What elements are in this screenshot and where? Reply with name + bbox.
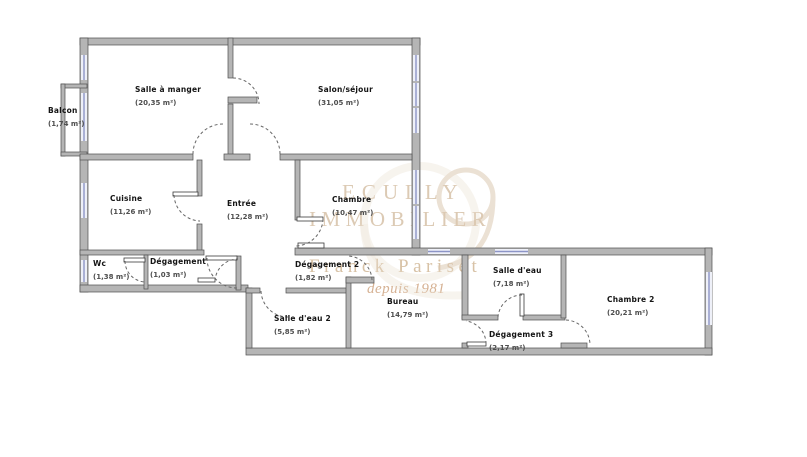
room-label-bureau: Bureau (14,79 m²) [387, 297, 428, 319]
room-name: Cuisine [110, 194, 151, 203]
room-name: Balcon [48, 106, 84, 115]
room-label-chambre-2: Chambre 2 (20,21 m²) [607, 295, 655, 317]
floor-plan-canvas: ECULLY IMMOBILIER Franck Pariset depuis … [0, 0, 807, 457]
room-name: Salle à manger [135, 85, 201, 94]
room-name: Dégagement [150, 257, 206, 266]
room-label-salle-a-manger: Salle à manger (20,35 m²) [135, 85, 201, 107]
room-name: Wc [93, 259, 129, 268]
room-name: Dégagement 3 [489, 330, 553, 339]
room-label-wc: Wc (1,38 m²) [93, 259, 129, 281]
room-area: (1,38 m²) [93, 273, 129, 281]
room-area: (31,05 m²) [318, 99, 373, 107]
room-name: Dégagement 2 [295, 260, 359, 269]
room-label-salle-d-eau-2: Salle d'eau 2 (5,85 m²) [274, 314, 331, 336]
room-area: (7,18 m²) [493, 280, 542, 288]
room-area: (1,82 m²) [295, 274, 359, 282]
room-label-cuisine: Cuisine (11,26 m²) [110, 194, 151, 216]
room-area: (20,35 m²) [135, 99, 201, 107]
room-area: (14,79 m²) [387, 311, 428, 319]
room-name: Salle d'eau [493, 266, 542, 275]
room-label-salle-d-eau: Salle d'eau (7,18 m²) [493, 266, 542, 288]
room-area: (11,26 m²) [110, 208, 151, 216]
room-name: Salon/séjour [318, 85, 373, 94]
room-area: (1,74 m²) [48, 120, 84, 128]
room-area: (12,28 m²) [227, 213, 268, 221]
room-label-entree: Entrée (12,28 m²) [227, 199, 268, 221]
room-label-degagement-3: Dégagement 3 (2,17 m²) [489, 330, 553, 352]
room-area: (1,03 m²) [150, 271, 206, 279]
room-label-salon-sejour: Salon/séjour (31,05 m²) [318, 85, 373, 107]
room-name: Salle d'eau 2 [274, 314, 331, 323]
room-label-balcon: Balcon (1,74 m²) [48, 106, 84, 128]
room-name: Entrée [227, 199, 268, 208]
room-label-degagement: Dégagement (1,03 m²) [150, 257, 206, 279]
room-label-chambre: Chambre (10,47 m²) [332, 195, 373, 217]
room-label-degagement-2: Dégagement 2 (1,82 m²) [295, 260, 359, 282]
room-name: Bureau [387, 297, 428, 306]
room-name: Chambre [332, 195, 373, 204]
room-area: (10,47 m²) [332, 209, 373, 217]
room-area: (5,85 m²) [274, 328, 331, 336]
room-name: Chambre 2 [607, 295, 655, 304]
room-area: (20,21 m²) [607, 309, 655, 317]
room-area: (2,17 m²) [489, 344, 553, 352]
room-labels: Salle à manger (20,35 m²) Salon/séjour (… [0, 0, 807, 457]
